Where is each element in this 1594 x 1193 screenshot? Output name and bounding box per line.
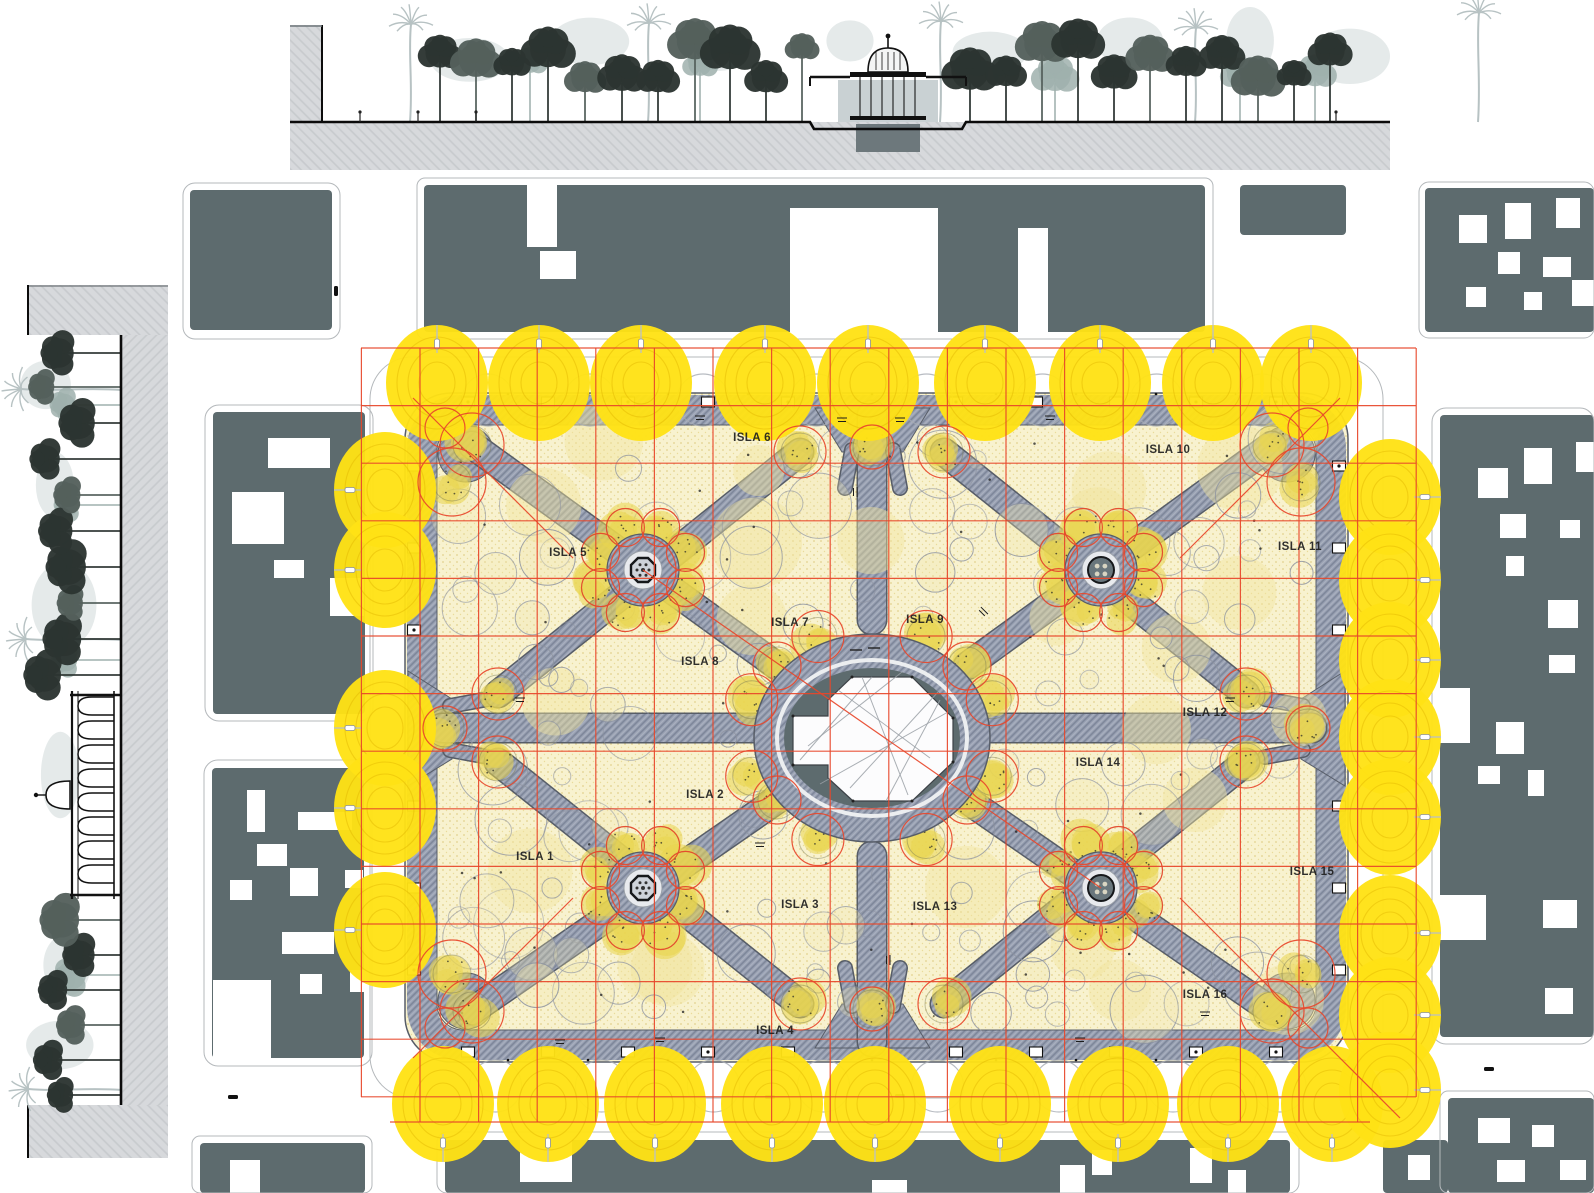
isla-14-label: ISLA 14 (1076, 757, 1121, 769)
street-tree (334, 872, 436, 988)
isla-3-label: ISLA 3 (781, 899, 819, 911)
isla-10-label: ISLA 10 (1146, 444, 1191, 456)
street-tree (817, 325, 919, 441)
street-tree (824, 1046, 926, 1162)
isla-9-label: ISLA 9 (906, 614, 944, 626)
central-kiosk-plaza (754, 634, 990, 842)
isla-12-label: ISLA 12 (1183, 707, 1228, 719)
street-tree (1260, 325, 1362, 441)
street-tree (1339, 759, 1441, 875)
isla-8-label: ISLA 8 (681, 656, 719, 668)
isla-5-label: ISLA 5 (549, 547, 587, 559)
street-tree (714, 325, 816, 441)
street-tree (1339, 1032, 1441, 1148)
street-tree (497, 1046, 599, 1162)
street-tree (488, 325, 590, 441)
isla-13-label: ISLA 13 (913, 901, 958, 913)
street-tree (1177, 1046, 1279, 1162)
street-tree (334, 750, 436, 866)
isla-6-label: ISLA 6 (733, 432, 771, 444)
street-tree (949, 1046, 1051, 1162)
site-plan-drawing: ISLA 1 ISLA 2 ISLA 3 ISLA 4 ISLA 5 ISLA … (0, 0, 1594, 1193)
street-tree (590, 325, 692, 441)
isla-1-label: ISLA 1 (516, 851, 554, 863)
isla-7-label: ISLA 7 (771, 617, 809, 629)
isla-2-label: ISLA 2 (686, 789, 724, 801)
street-tree (934, 325, 1036, 441)
isla-4-label: ISLA 4 (756, 1025, 794, 1037)
isla-11-label: ISLA 11 (1278, 541, 1322, 553)
site-plan-page: ISLA 1 ISLA 2 ISLA 3 ISLA 4 ISLA 5 ISLA … (0, 0, 1594, 1193)
street-tree (1067, 1046, 1169, 1162)
isla-16-label: ISLA 16 (1183, 989, 1228, 1001)
isla-15-label: ISLA 15 (1290, 866, 1335, 878)
street-tree (334, 512, 436, 628)
street-tree (386, 325, 488, 441)
